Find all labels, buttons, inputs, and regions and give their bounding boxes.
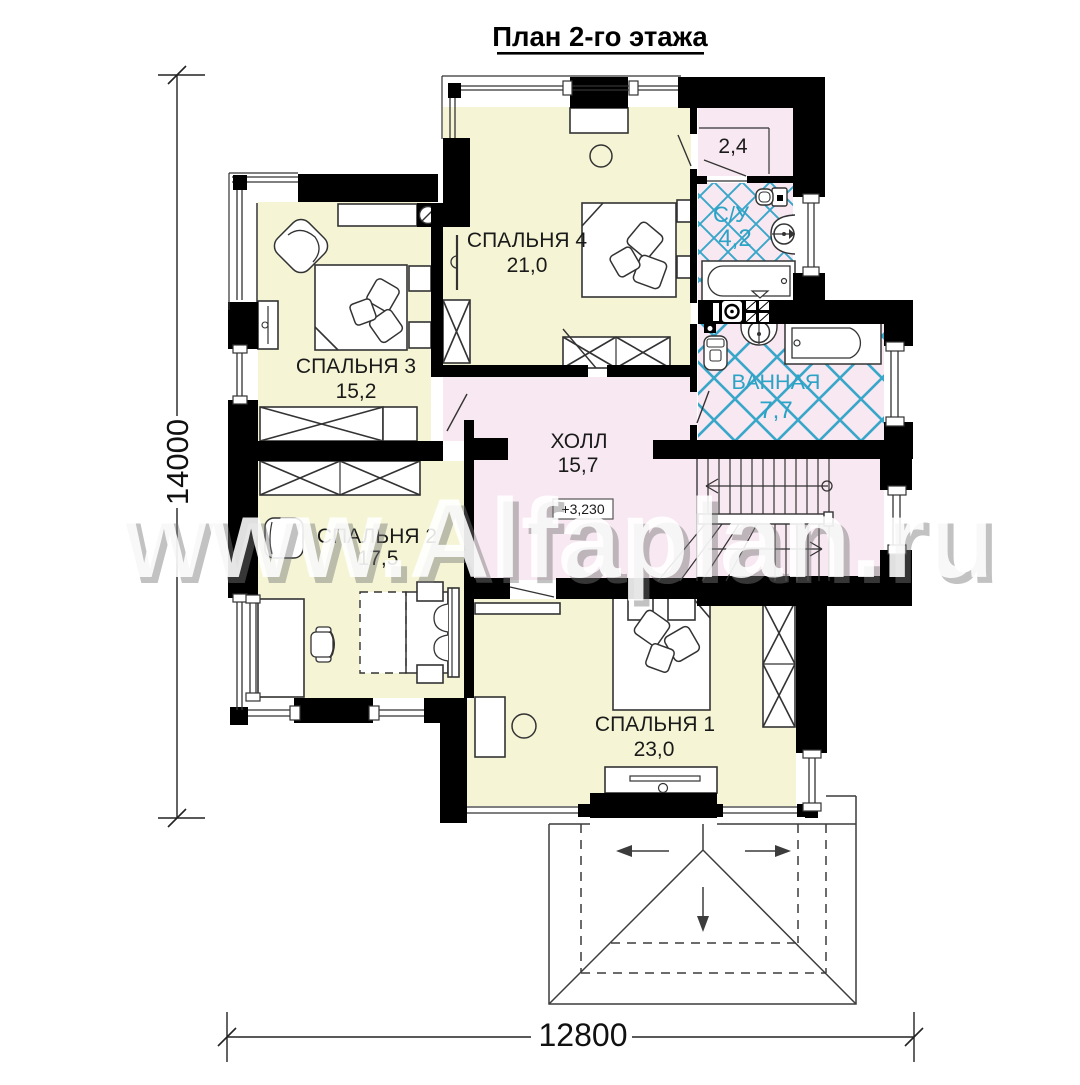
svg-text:СПАЛЬНЯ 3: СПАЛЬНЯ 3 bbox=[296, 355, 416, 378]
svg-text:2,4: 2,4 bbox=[718, 135, 748, 158]
svg-text:15,7: 15,7 bbox=[558, 454, 599, 477]
svg-text:21,0: 21,0 bbox=[507, 254, 548, 277]
svg-text:4,2: 4,2 bbox=[718, 225, 751, 252]
svg-text:www.Alfaplan.ru: www.Alfaplan.ru bbox=[119, 476, 993, 601]
svg-text:С/У: С/У bbox=[713, 202, 750, 227]
svg-text:СПАЛЬНЯ 4: СПАЛЬНЯ 4 bbox=[467, 229, 587, 252]
svg-text:12800: 12800 bbox=[539, 1017, 628, 1053]
svg-text:7,7: 7,7 bbox=[759, 397, 792, 424]
svg-text:ВАННАЯ: ВАННАЯ bbox=[732, 370, 821, 394]
svg-text:15,2: 15,2 bbox=[336, 380, 377, 403]
svg-text:План 2-го этажа: План 2-го этажа bbox=[492, 21, 708, 52]
svg-text:ХОЛЛ: ХОЛЛ bbox=[551, 430, 608, 453]
svg-text:СПАЛЬНЯ 1: СПАЛЬНЯ 1 bbox=[595, 713, 715, 736]
svg-text:23,0: 23,0 bbox=[634, 738, 675, 761]
